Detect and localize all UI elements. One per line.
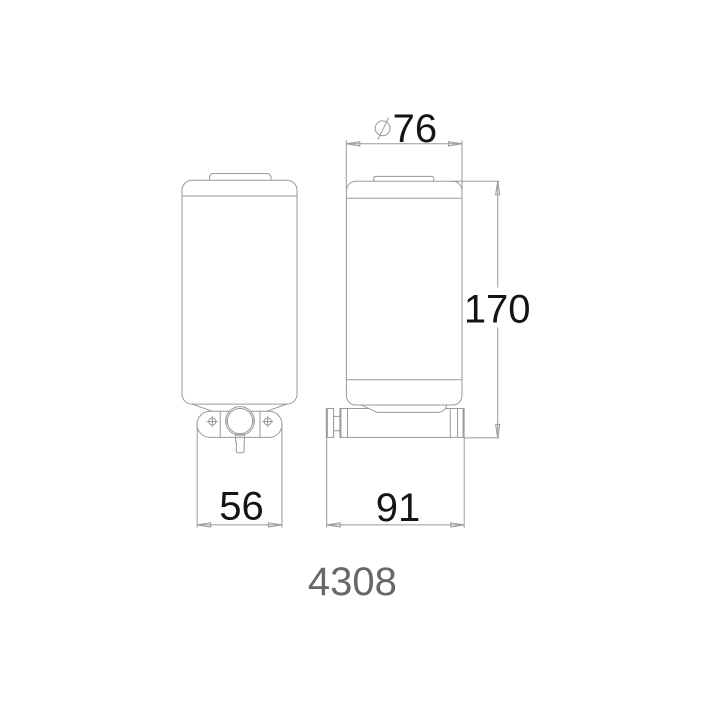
svg-text:91: 91 <box>376 486 421 530</box>
svg-text:170: 170 <box>464 288 531 332</box>
svg-text:4308: 4308 <box>308 560 397 604</box>
svg-text:56: 56 <box>219 485 264 529</box>
svg-text:76: 76 <box>393 107 438 151</box>
